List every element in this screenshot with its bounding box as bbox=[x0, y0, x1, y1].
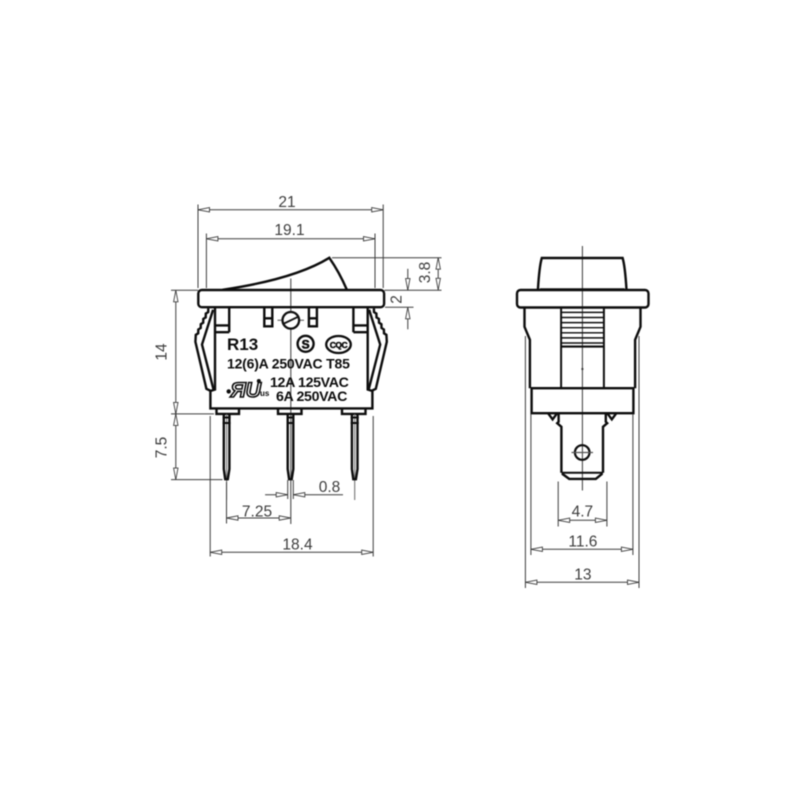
svg-text:0.8: 0.8 bbox=[319, 479, 341, 496]
svg-text:21: 21 bbox=[278, 194, 295, 211]
svg-text:14: 14 bbox=[154, 343, 171, 361]
svg-text:18.4: 18.4 bbox=[282, 537, 313, 554]
svg-text:R13: R13 bbox=[227, 335, 258, 354]
svg-text:3.8: 3.8 bbox=[417, 262, 434, 284]
svg-text:7.5: 7.5 bbox=[154, 437, 171, 459]
svg-text:S: S bbox=[302, 337, 310, 351]
svg-text:us: us bbox=[260, 389, 270, 398]
svg-text:12(6)A 250VAC T85: 12(6)A 250VAC T85 bbox=[227, 356, 350, 372]
svg-text:ЯU: ЯU bbox=[230, 379, 262, 402]
svg-text:13: 13 bbox=[574, 567, 591, 584]
svg-text:CQC: CQC bbox=[330, 340, 348, 350]
svg-text:19.1: 19.1 bbox=[274, 222, 304, 239]
svg-text:4.7: 4.7 bbox=[572, 504, 594, 521]
svg-text:7.25: 7.25 bbox=[242, 503, 272, 520]
svg-text:11.6: 11.6 bbox=[568, 534, 597, 551]
svg-text:2: 2 bbox=[388, 295, 405, 304]
svg-text:6A 250VAC: 6A 250VAC bbox=[276, 389, 347, 405]
